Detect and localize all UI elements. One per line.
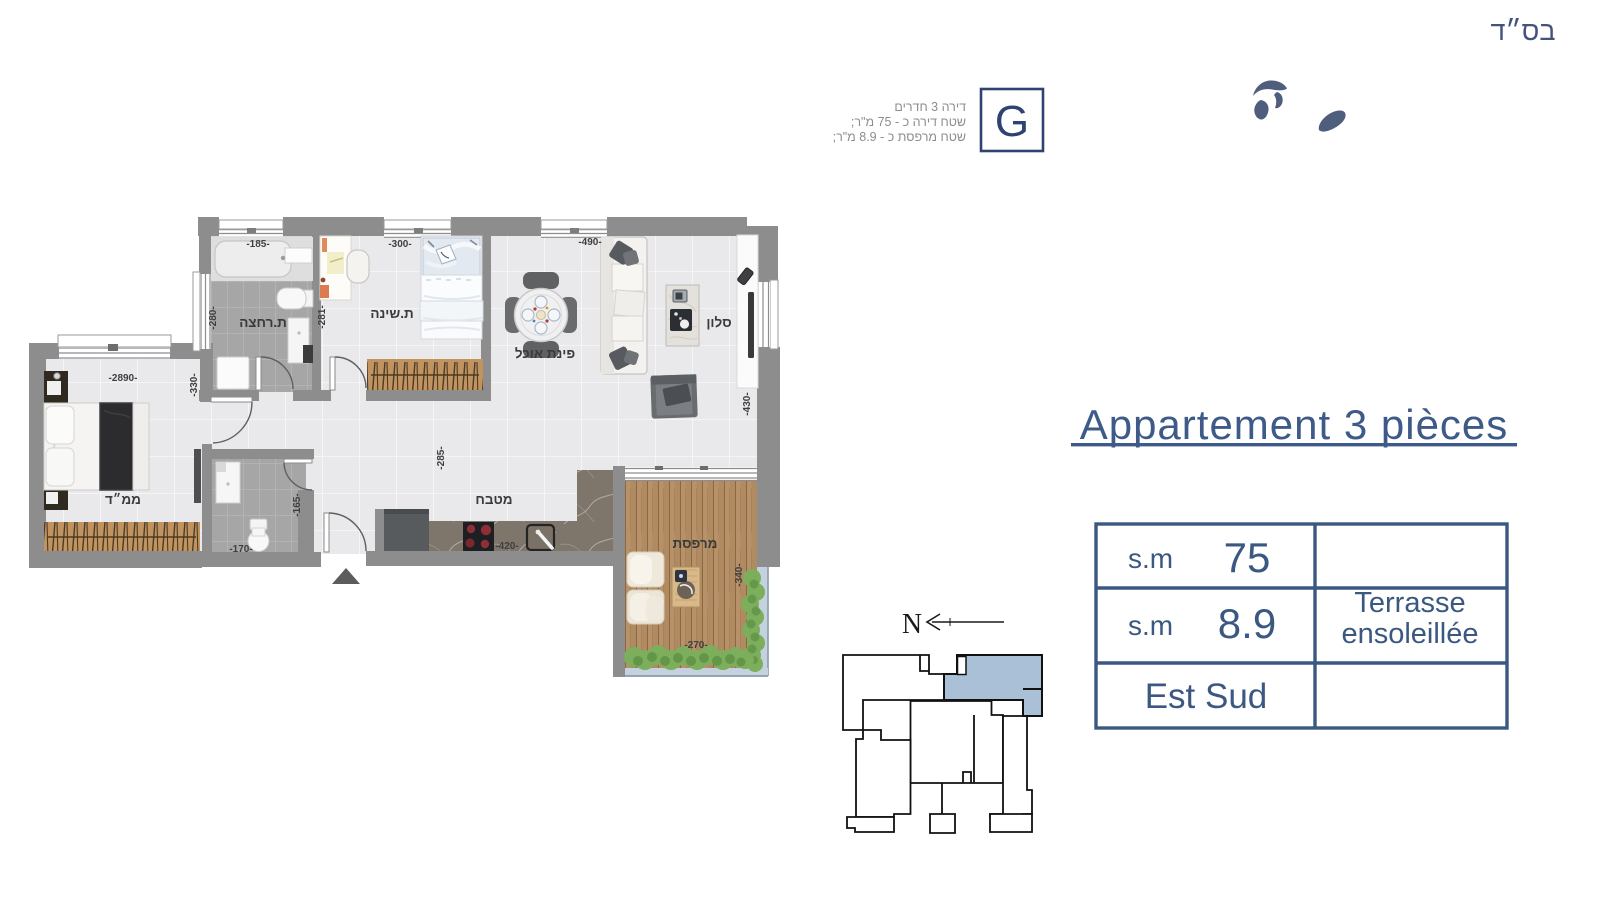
svg-text:ממ״ד: ממ״ד [105,492,141,507]
svg-text:דירה 3 חדרים: דירה 3 חדרים [894,100,966,114]
svg-text:-170-: -170- [229,544,252,555]
svg-text:בס״ד: בס״ד [1490,16,1555,46]
svg-text:-300-: -300- [388,239,411,250]
svg-text:s.m: s.m [1128,543,1173,574]
svg-text:-280-: -280- [208,306,219,329]
svg-text:8.9: 8.9 [1218,600,1276,647]
svg-text:Est Sud: Est Sud [1145,677,1268,716]
svg-text:G: G [995,97,1029,146]
svg-text:ת.שינה: ת.שינה [370,306,413,321]
svg-text:-285-: -285- [436,446,447,469]
svg-text:-420-: -420- [495,541,518,552]
svg-text:-490-: -490- [578,237,601,248]
svg-text:N: N [902,609,922,640]
svg-text:מטבח: מטבח [475,492,512,507]
svg-text:סלון: סלון [706,315,731,330]
svg-text:ensoleillée: ensoleillée [1341,618,1478,650]
svg-text:-165-: -165- [292,493,303,516]
svg-text:שטח דירה כ - 75 מ"ר;: שטח דירה כ - 75 מ"ר; [851,115,966,129]
svg-text:-270-: -270- [684,640,707,651]
svg-text:-330-: -330- [189,373,200,396]
svg-text:שטח מרפסת כ - 8.9 מ"ר;: שטח מרפסת כ - 8.9 מ"ר; [833,130,966,144]
svg-text:מרפסת: מרפסת [673,536,718,551]
svg-text:-430-: -430- [742,392,753,415]
svg-text:s.m: s.m [1128,610,1173,641]
svg-text:75: 75 [1224,534,1271,581]
svg-text:-2890-: -2890- [109,373,138,384]
svg-text:ת.רחצה: ת.רחצה [239,315,287,330]
svg-text:Terrasse: Terrasse [1354,587,1465,619]
svg-text:פינת אוכל: פינת אוכל [515,346,576,361]
svg-text:-281-: -281- [317,305,328,328]
svg-text:-340-: -340- [734,563,745,586]
svg-text:-185-: -185- [246,239,269,250]
svg-text:Appartement 3 pièces: Appartement 3 pièces [1080,401,1509,448]
